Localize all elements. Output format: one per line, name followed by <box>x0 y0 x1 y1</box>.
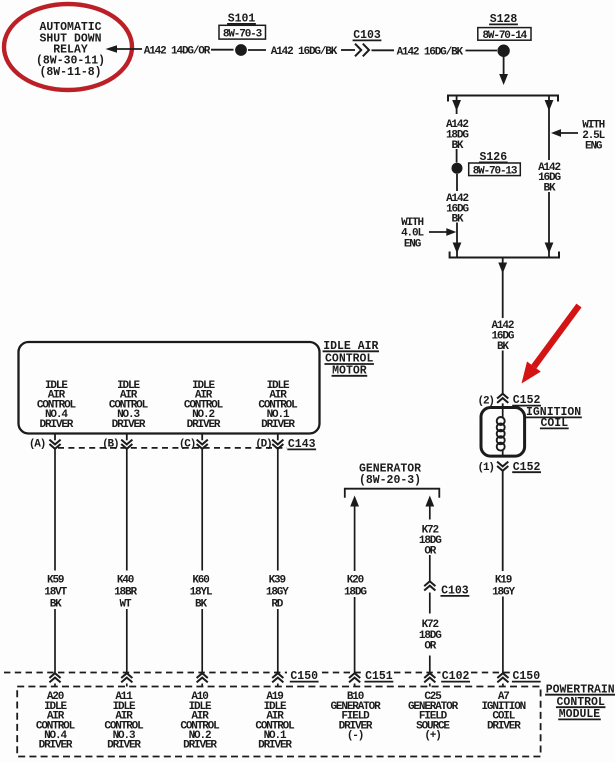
svg-text:A142 14DG/OR: A142 14DG/OR <box>144 46 211 58</box>
svg-text:K59: K59 <box>47 574 64 586</box>
svg-text:(-): (-) <box>347 730 363 742</box>
svg-text:(+): (+) <box>424 730 440 742</box>
svg-text:18DG: 18DG <box>344 586 367 598</box>
svg-text:8W-70-14: 8W-70-14 <box>482 30 527 42</box>
svg-text:8W-70-3: 8W-70-3 <box>223 29 263 41</box>
svg-text:OR: OR <box>424 545 436 557</box>
svg-text:DRIVER: DRIVER <box>183 740 217 752</box>
svg-text:DRIVER: DRIVER <box>40 419 74 431</box>
svg-text:(B): (B) <box>102 438 118 450</box>
svg-text:WT: WT <box>120 598 132 610</box>
svg-text:K19: K19 <box>495 574 512 586</box>
svg-text:DRIVER: DRIVER <box>107 740 141 752</box>
svg-text:(D): (D) <box>255 438 271 450</box>
svg-text:8W-70-13: 8W-70-13 <box>473 165 518 177</box>
svg-text:(1): (1) <box>478 462 494 474</box>
svg-text:K20: K20 <box>347 574 364 586</box>
svg-text:A142 16DG/BK: A142 16DG/BK <box>271 46 338 58</box>
svg-text:DRIVER: DRIVER <box>261 419 295 431</box>
svg-text:BK: BK <box>50 598 62 610</box>
svg-text:K40: K40 <box>117 574 134 586</box>
svg-text:DRIVER: DRIVER <box>39 740 73 752</box>
svg-text:DRIVER: DRIVER <box>187 419 221 431</box>
svg-text:RD: RD <box>271 598 283 610</box>
svg-text:DRIVER: DRIVER <box>258 740 292 752</box>
svg-text:A142 16DG/BK: A142 16DG/BK <box>397 46 464 58</box>
svg-text:18YL: 18YL <box>190 586 213 598</box>
svg-text:18GY: 18GY <box>266 586 289 598</box>
svg-text:(8W-11-8): (8W-11-8) <box>39 66 101 79</box>
svg-text:DRIVER: DRIVER <box>112 419 146 431</box>
svg-text:18VT: 18VT <box>44 586 67 598</box>
svg-text:(2): (2) <box>478 395 494 407</box>
svg-text:(8W-20-3): (8W-20-3) <box>359 474 421 487</box>
svg-text:K39: K39 <box>269 574 286 586</box>
svg-text:(A): (A) <box>29 438 45 450</box>
svg-text:ENG: ENG <box>404 238 422 250</box>
svg-text:(C): (C) <box>179 438 195 450</box>
svg-text:DRIVER: DRIVER <box>487 720 521 732</box>
svg-text:18GY: 18GY <box>492 586 515 598</box>
svg-text:K60: K60 <box>192 574 209 586</box>
svg-text:ENG: ENG <box>585 141 603 153</box>
svg-text:BK: BK <box>195 598 207 610</box>
svg-text:18BR: 18BR <box>114 586 137 598</box>
svg-text:OR: OR <box>424 641 436 653</box>
svg-text:BK: BK <box>451 140 463 152</box>
